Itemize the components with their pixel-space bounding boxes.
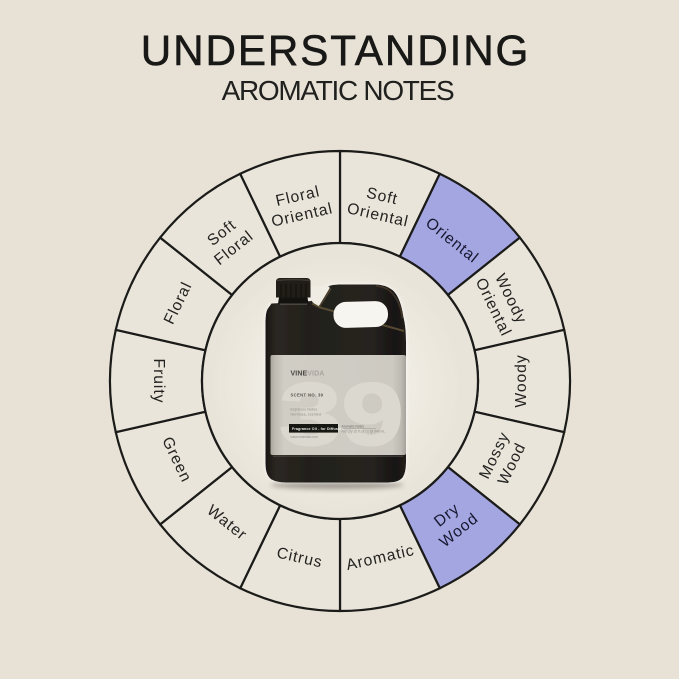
svg-text:VINEVIDA: VINEVIDA (291, 371, 325, 378)
svg-text:Aromatic Notes: Aromatic Notes (342, 424, 365, 428)
svg-text:www.vinevida.com: www.vinevida.com (291, 435, 318, 439)
svg-text:Espresso Notes: Espresso Notes (291, 408, 318, 412)
svg-text:Hermosa, scented: Hermosa, scented (291, 413, 322, 417)
svg-text:SCENT NO. 39: SCENT NO. 39 (291, 393, 324, 398)
svg-text:Fruity: Fruity (150, 359, 167, 404)
svg-text:Woody: Woody (513, 354, 530, 407)
svg-text:Fragrance Oil - for Diffusers: Fragrance Oil - for Diffusers (292, 427, 344, 431)
svg-text:Net Qty 32 fl.oz / 1 Qt 946 mL: Net Qty 32 fl.oz / 1 Qt 946 mL (342, 429, 386, 433)
